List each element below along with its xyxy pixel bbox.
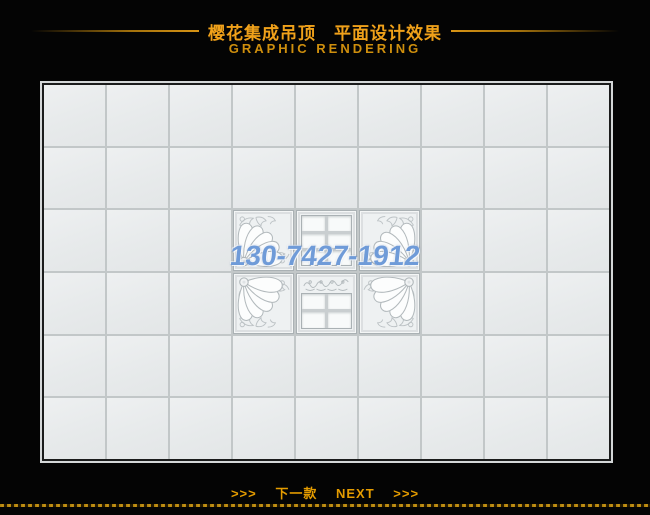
ceiling-tile <box>422 336 483 397</box>
ceiling-tile <box>548 148 609 209</box>
ceiling-tile <box>485 273 546 334</box>
fan-ornament-graphic <box>237 277 290 330</box>
ceiling-tile <box>170 336 231 397</box>
ceiling-tile <box>485 336 546 397</box>
next-label-cn: 下一款 <box>275 486 317 501</box>
ceiling-tile <box>359 148 420 209</box>
ceiling-tile <box>233 398 294 459</box>
scrollwork-band-graphic <box>302 278 351 292</box>
ceiling-tile <box>296 273 357 334</box>
page-subtitle: GRAPHIC RENDERING <box>0 41 650 56</box>
watermark-phone: 130-7427-1912 <box>0 240 650 272</box>
panel-inner-frame <box>42 83 611 461</box>
ceiling-tile <box>359 85 420 146</box>
ceiling-tile <box>44 148 105 209</box>
ceiling-tile <box>548 85 609 146</box>
ceiling-tile <box>107 148 168 209</box>
ceiling-tile <box>107 85 168 146</box>
ceiling-tile <box>485 148 546 209</box>
ceiling-tile <box>548 273 609 334</box>
ceiling-tile-grid <box>44 85 609 459</box>
ceiling-tile <box>107 273 168 334</box>
ceiling-tile <box>485 85 546 146</box>
window-pane <box>302 216 325 230</box>
window-panel-graphic <box>302 294 351 328</box>
title-divider-left <box>31 30 199 32</box>
ceiling-tile <box>485 398 546 459</box>
ceiling-tile <box>422 273 483 334</box>
ceiling-tile <box>422 398 483 459</box>
ceiling-tile <box>548 336 609 397</box>
ceiling-tile <box>422 85 483 146</box>
ceiling-tile <box>107 336 168 397</box>
page-title: 樱花集成吊顶 平面设计效果 <box>208 19 442 44</box>
page: 樱花集成吊顶 平面设计效果 GRAPHIC RENDERING <box>0 0 650 515</box>
ceiling-tile <box>233 273 294 334</box>
ceiling-tile <box>359 273 420 334</box>
ceiling-tile <box>170 398 231 459</box>
ceiling-tile <box>359 398 420 459</box>
arrows-right-icon: >>> <box>393 486 419 501</box>
arrows-left-icon: >>> <box>231 486 257 501</box>
window-pane <box>328 216 351 230</box>
window-pane <box>328 312 351 327</box>
ceiling-tile <box>170 273 231 334</box>
ceiling-tile <box>233 336 294 397</box>
next-label-en: NEXT <box>336 486 375 501</box>
ceiling-tile <box>170 85 231 146</box>
ceiling-tile <box>170 148 231 209</box>
fan-ornament-graphic <box>363 277 416 330</box>
ceiling-tile <box>233 85 294 146</box>
ceiling-tile <box>44 336 105 397</box>
ceiling-tile <box>44 398 105 459</box>
window-pane <box>302 294 325 309</box>
window-pane <box>302 312 325 327</box>
ceiling-tile <box>296 398 357 459</box>
ceiling-tile <box>422 148 483 209</box>
ceiling-tile <box>233 148 294 209</box>
title-divider-right <box>451 30 619 32</box>
ceiling-render-panel <box>40 81 613 463</box>
ceiling-tile <box>296 336 357 397</box>
ceiling-tile <box>107 398 168 459</box>
ceiling-tile <box>44 273 105 334</box>
next-item-link[interactable]: >>> 下一款 NEXT >>> <box>0 483 650 502</box>
ceiling-tile <box>359 336 420 397</box>
footer-dashed-divider <box>0 504 650 507</box>
ceiling-tile <box>296 85 357 146</box>
window-pane <box>328 294 351 309</box>
ceiling-tile <box>296 148 357 209</box>
ceiling-tile <box>548 398 609 459</box>
header: 樱花集成吊顶 平面设计效果 <box>0 21 650 41</box>
ceiling-tile <box>44 85 105 146</box>
